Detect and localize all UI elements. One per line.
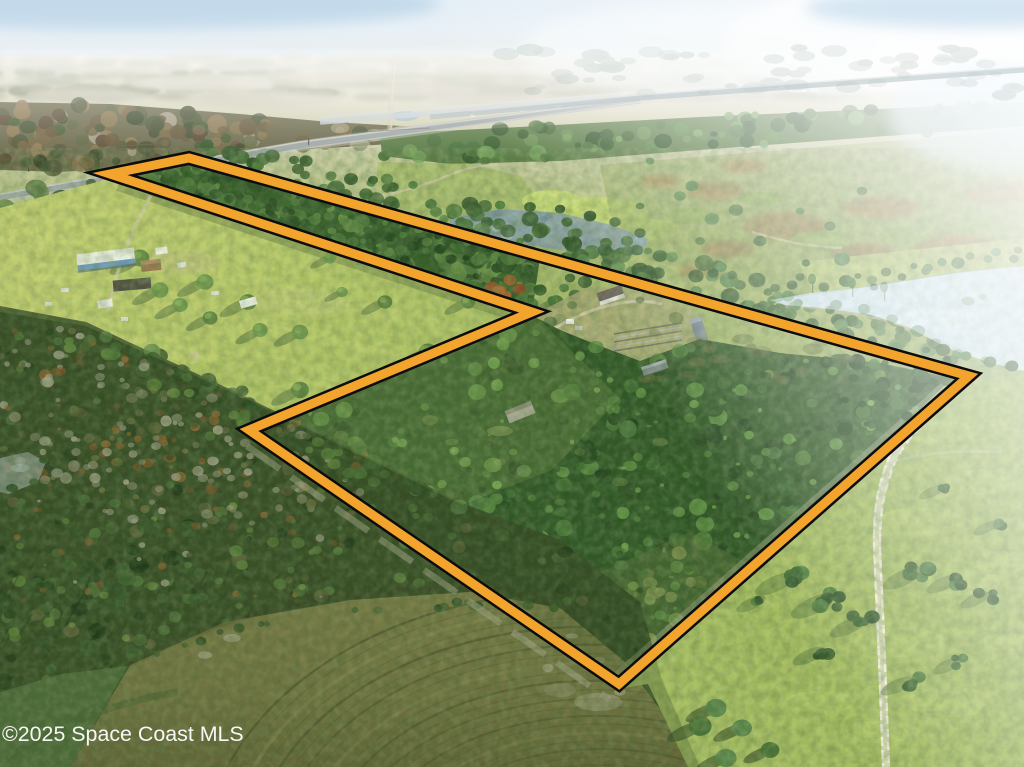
svg-text:©2025 Space Coast MLS: ©2025 Space Coast MLS [2,722,244,746]
